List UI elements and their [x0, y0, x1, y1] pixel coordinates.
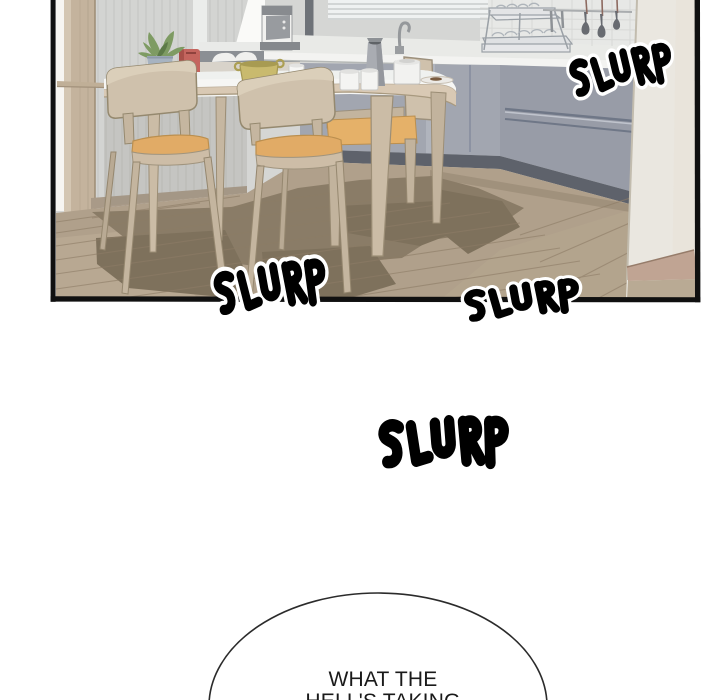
svg-text:HELL'S TAKING: HELL'S TAKING	[305, 690, 460, 700]
svg-text:WHAT THE: WHAT THE	[329, 668, 438, 691]
